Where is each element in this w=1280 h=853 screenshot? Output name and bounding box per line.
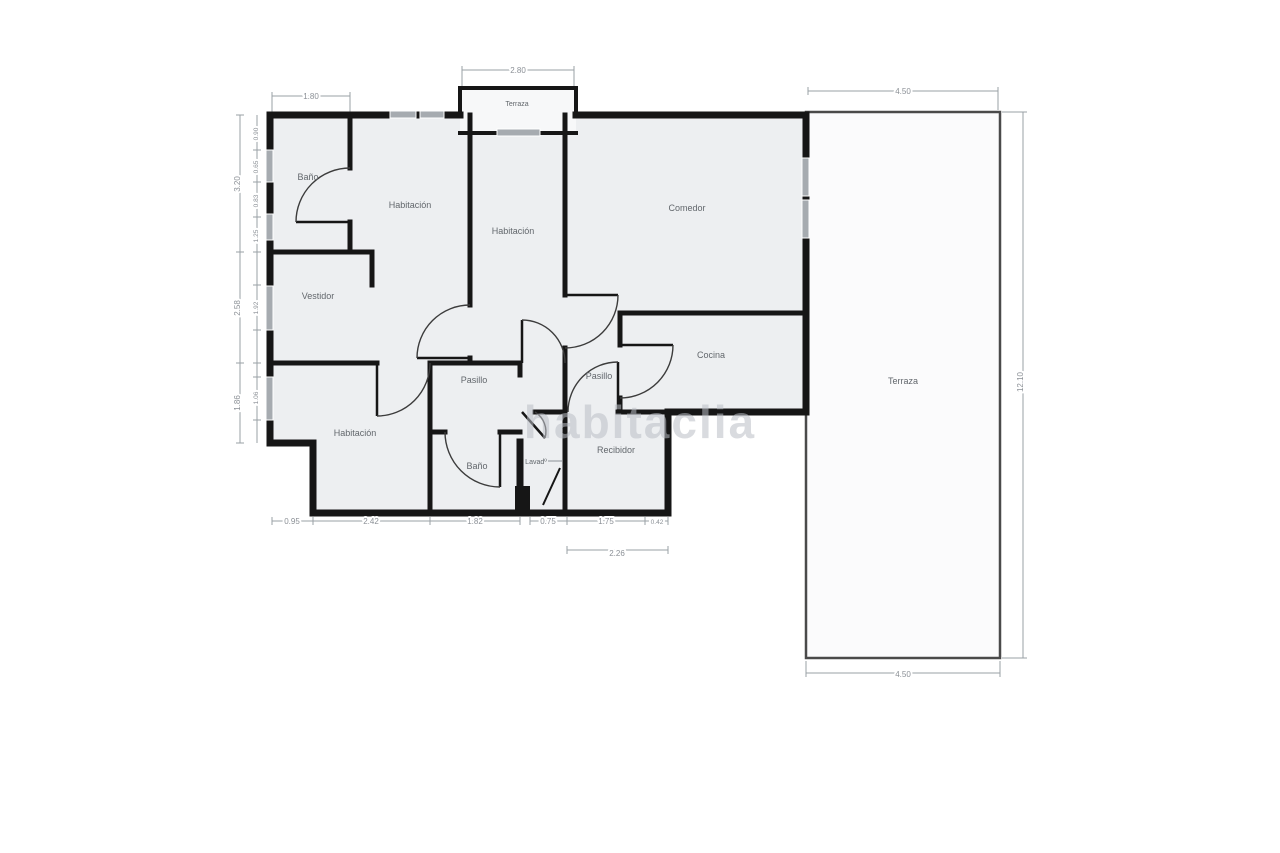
floorplan-page: BañoHabitaciónHabitaciónComedorTerrazaVe… xyxy=(0,0,1280,853)
window-icon xyxy=(266,214,273,240)
room-label: Recibidor xyxy=(597,445,635,455)
dimension-label: 3.20 xyxy=(233,176,242,192)
room-label: Lavadº xyxy=(525,459,547,466)
dimension-label: 0.95 xyxy=(284,517,300,526)
window-icon xyxy=(266,377,273,420)
window-icon xyxy=(802,158,809,196)
room-label: Habitación xyxy=(389,200,432,210)
room-label: Habitación xyxy=(492,226,535,236)
dimension-label: 1.92 xyxy=(253,301,260,314)
window-icon xyxy=(802,200,809,238)
dimension-label: 0.65 xyxy=(253,160,260,173)
dimension-label: 0.83 xyxy=(253,194,260,207)
window-icon xyxy=(266,286,273,330)
dimension-label: 4.50 xyxy=(895,87,911,96)
dimension-label: 1.86 xyxy=(233,395,242,411)
room-label: Baño xyxy=(466,461,487,471)
dimension-label: 2.26 xyxy=(609,549,625,558)
dimension-label: 0.90 xyxy=(253,127,260,140)
dimension-label: 4.50 xyxy=(895,670,911,679)
dimension-label: 0.75 xyxy=(540,517,556,526)
dimension-label: 0.42 xyxy=(651,519,664,526)
dimension-label: 1.80 xyxy=(303,92,319,101)
room-label: Comedor xyxy=(668,203,705,213)
floorplan-drawing: BañoHabitaciónHabitaciónComedorTerrazaVe… xyxy=(0,0,1280,853)
dimension-label: 2.42 xyxy=(363,517,379,526)
dimension-label: 1.75 xyxy=(598,517,614,526)
room-label: Terraza xyxy=(888,376,918,386)
room-label: Habitación xyxy=(334,428,377,438)
room-label: Pasillo xyxy=(461,375,488,385)
dimension-label: 1.82 xyxy=(467,517,483,526)
room-label: Pasillo xyxy=(586,371,613,381)
terrace-small-floor xyxy=(460,88,576,133)
dimension-label: 1.06 xyxy=(253,391,260,404)
dimension-label: 12.10 xyxy=(1016,371,1025,392)
dimension-label: 2.80 xyxy=(510,66,526,75)
window-icon xyxy=(497,129,540,136)
window-icon xyxy=(420,111,444,118)
window-icon xyxy=(390,111,416,118)
room-label: Baño xyxy=(297,172,318,182)
dimension-label: 2.58 xyxy=(233,300,242,316)
room-label: Cocina xyxy=(697,350,725,360)
dimension-label: 1.25 xyxy=(253,229,260,242)
window-icon xyxy=(266,150,273,182)
room-label: Terraza xyxy=(505,101,528,108)
room-label: Vestidor xyxy=(302,291,335,301)
